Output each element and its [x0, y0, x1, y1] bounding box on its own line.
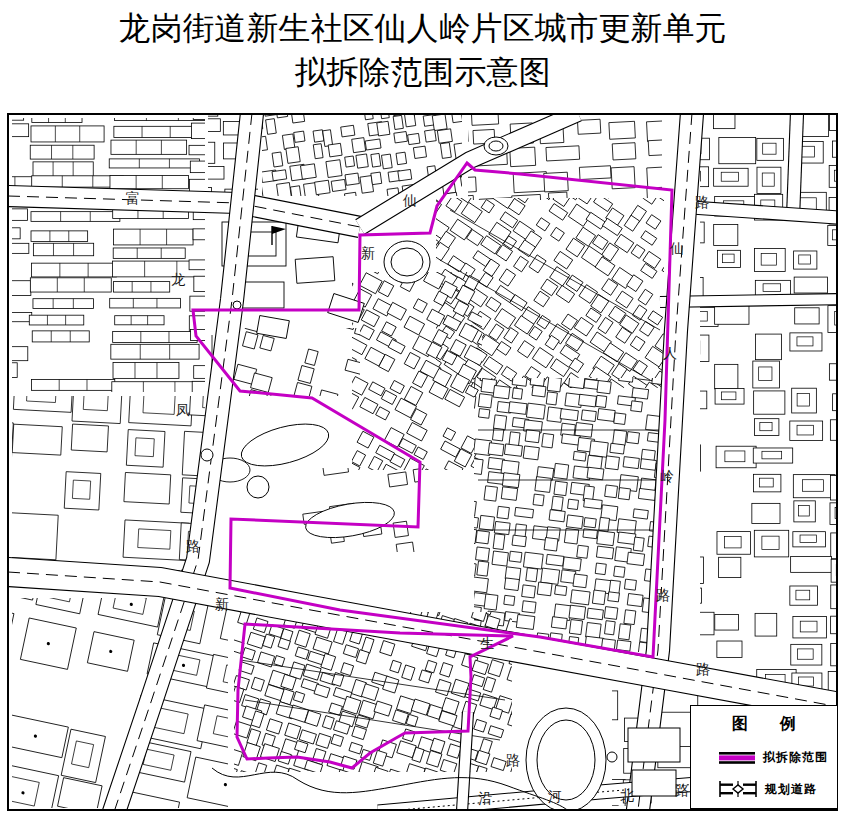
street-label: 路: [656, 588, 670, 603]
legend-item-label: 拟拆除范围: [763, 749, 828, 766]
demolition-extent-icon: [719, 752, 755, 764]
street-label: 路: [696, 662, 710, 677]
legend-item-demolition: 拟拆除范围: [719, 749, 837, 766]
street-label: 北: [620, 788, 634, 803]
street-label: 路: [675, 783, 689, 798]
legend-item-road: 规划道路: [719, 780, 837, 798]
legend-item-label: 规划道路: [765, 781, 817, 798]
street-label: 富: [126, 190, 140, 206]
title-line-1: 龙岗街道新生社区仙人岭片区城市更新单元: [0, 6, 845, 50]
page-title: 龙岗街道新生社区仙人岭片区城市更新单元 拟拆除范围示意图: [0, 6, 845, 94]
street-label: 岭: [660, 469, 674, 484]
street-label: 路: [695, 195, 709, 210]
street-label: 路: [186, 539, 200, 554]
page: { "page": { "title_line1": "龙岗街道新生社区仙人岭片…: [0, 0, 845, 818]
street-label: 沿: [478, 791, 492, 806]
street-label: 龙: [171, 272, 186, 287]
street-label: 新: [215, 596, 229, 612]
street-label: 新: [361, 245, 375, 261]
street-label: 仙: [669, 241, 684, 256]
street-label: 凤: [176, 403, 190, 418]
street-label: 仙: [402, 193, 417, 208]
street-label: 河: [548, 789, 562, 804]
street-label: 生: [480, 636, 494, 651]
legend-title: 图 例: [691, 714, 837, 735]
street-label: 路: [506, 753, 520, 768]
title-line-2: 拟拆除范围示意图: [0, 50, 845, 94]
legend-box: 图 例 拟拆除范围 规划道路: [690, 705, 838, 809]
street-label: 人: [663, 346, 677, 361]
planned-road-icon: [719, 780, 757, 798]
